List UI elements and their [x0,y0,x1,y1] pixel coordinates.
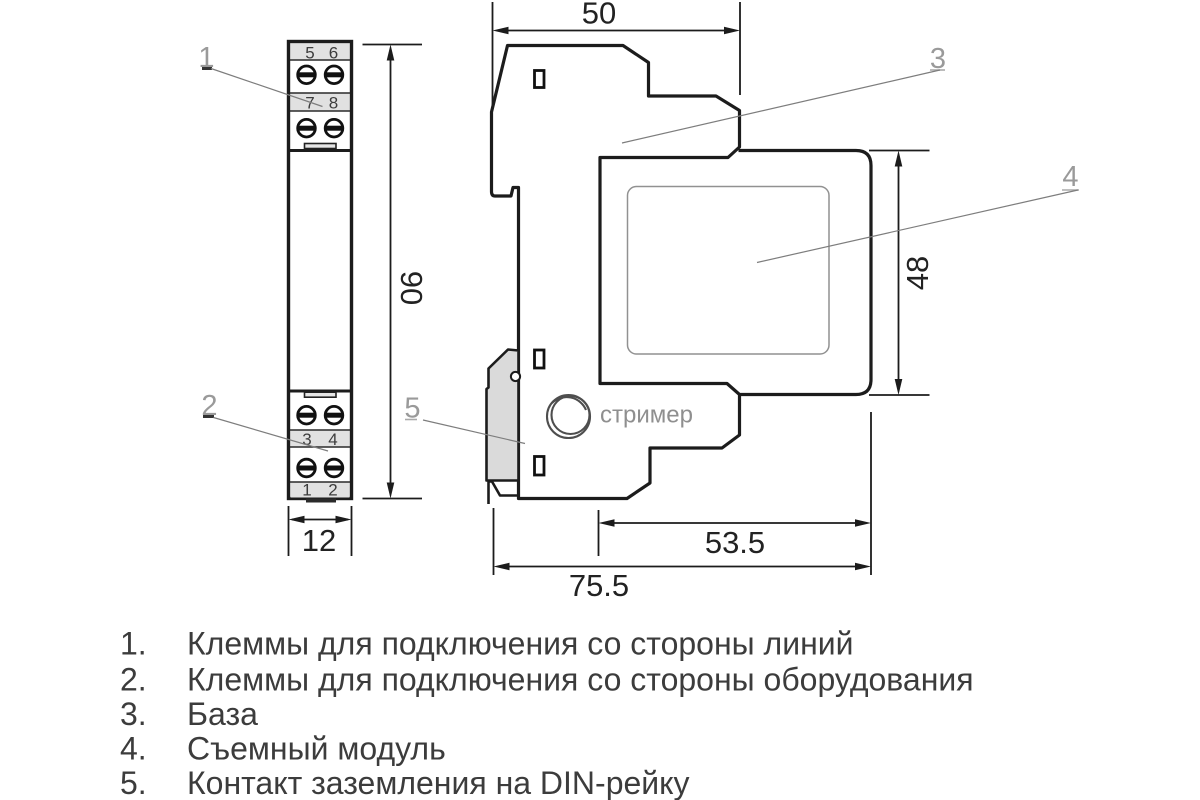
svg-text:90: 90 [394,271,429,305]
svg-text:6: 6 [329,44,338,63]
svg-text:Контакт заземления на DIN-рейк: Контакт заземления на DIN-рейку [187,765,690,800]
svg-text:5.: 5. [120,765,147,800]
svg-text:4: 4 [1062,161,1078,193]
svg-text:стример: стример [600,402,693,429]
svg-text:Клеммы для подключения со стор: Клеммы для подключения со стороны оборуд… [187,662,974,698]
svg-text:1.: 1. [120,626,147,662]
svg-text:8: 8 [329,94,338,113]
svg-text:3.: 3. [120,696,147,732]
svg-text:2.: 2. [120,662,147,698]
svg-text:12: 12 [302,523,336,558]
svg-text:75.5: 75.5 [569,568,629,603]
svg-text:50: 50 [582,0,616,31]
svg-text:Съемный модуль: Съемный модуль [187,731,446,767]
svg-text:4: 4 [328,430,337,449]
svg-text:48: 48 [900,256,935,290]
svg-text:2: 2 [328,481,337,500]
svg-text:База: База [187,696,258,732]
svg-text:5: 5 [305,44,314,63]
svg-text:4.: 4. [120,731,147,767]
svg-text:53.5: 53.5 [705,525,765,560]
svg-text:Клеммы для подключения со стор: Клеммы для подключения со стороны линий [187,626,853,662]
svg-text:1: 1 [302,481,311,500]
